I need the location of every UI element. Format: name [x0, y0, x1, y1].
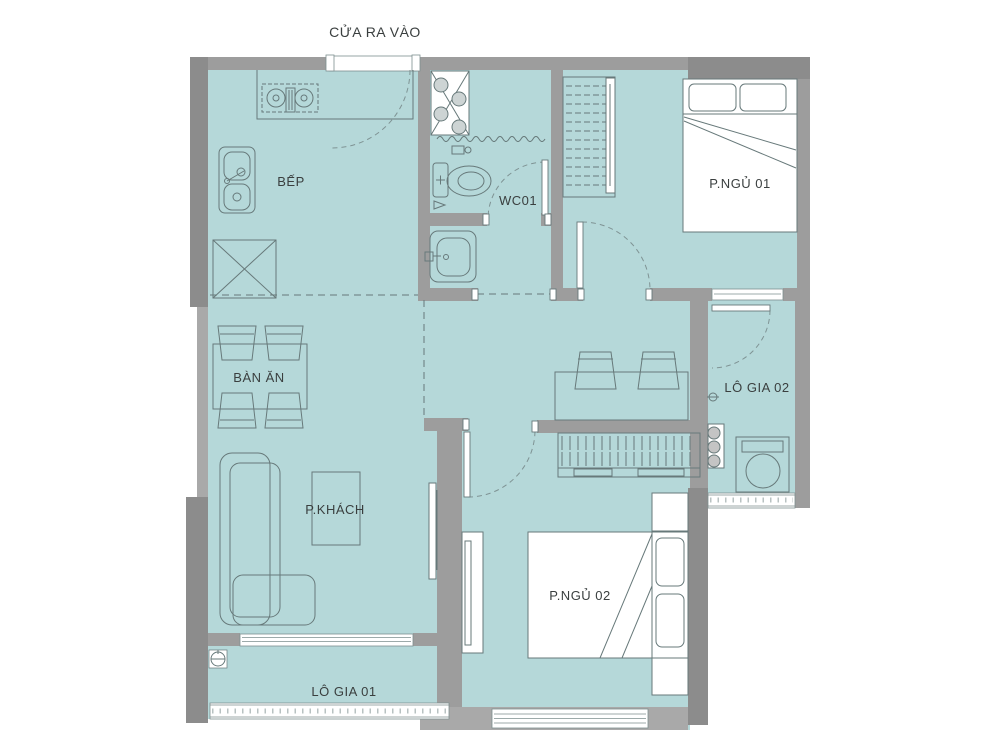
- nightstand: [652, 658, 688, 695]
- pillow: [689, 84, 736, 111]
- room-label-loggia1: LÔ GIA 01: [311, 684, 376, 699]
- pipes: [708, 424, 724, 468]
- door-jamb: [326, 55, 334, 71]
- entrance-opening: [329, 56, 416, 71]
- floor-loggia2: [700, 288, 795, 508]
- door-jamb: [412, 55, 420, 71]
- room-label-loggia2: LÔ GIA 02: [724, 380, 789, 395]
- pillow: [656, 538, 684, 586]
- room-label-bedroom1: P.NGỦ 01: [709, 176, 771, 191]
- window-loggia1: [240, 634, 413, 646]
- floor-plan: CỬA RA VÀO BẾP WC01 P.NGỦ 01 LÔ GIA 02 B…: [0, 0, 1000, 750]
- room-label-dining: BÀN ĂN: [233, 370, 284, 385]
- room-label-wc: WC01: [499, 193, 537, 208]
- pillow: [740, 84, 786, 111]
- window-loggia2: [712, 289, 783, 300]
- bed-bedroom1: [683, 79, 797, 232]
- bedroom1-door-leaf: [577, 222, 583, 288]
- pillow: [656, 594, 684, 647]
- tv-panel-bedroom2: [462, 532, 483, 653]
- floor-plan-page: CỬA RA VÀO BẾP WC01 P.NGỦ 01 LÔ GIA 02 B…: [0, 0, 1000, 750]
- technical-shaft: [431, 71, 469, 135]
- room-label-kitchen: BẾP: [277, 174, 305, 189]
- loggia2-door-leaf: [712, 305, 770, 311]
- bedroom2-door-leaf: [464, 432, 470, 497]
- nightstand: [652, 493, 688, 531]
- entrance-label: CỬA RA VÀO: [329, 23, 421, 40]
- wc-door-leaf: [542, 160, 548, 215]
- room-label-bedroom2: P.NGỦ 02: [549, 588, 611, 603]
- loggia1-fixtures: [209, 650, 227, 668]
- tv-panel-living: [429, 483, 437, 579]
- room-label-living: P.KHÁCH: [305, 502, 365, 517]
